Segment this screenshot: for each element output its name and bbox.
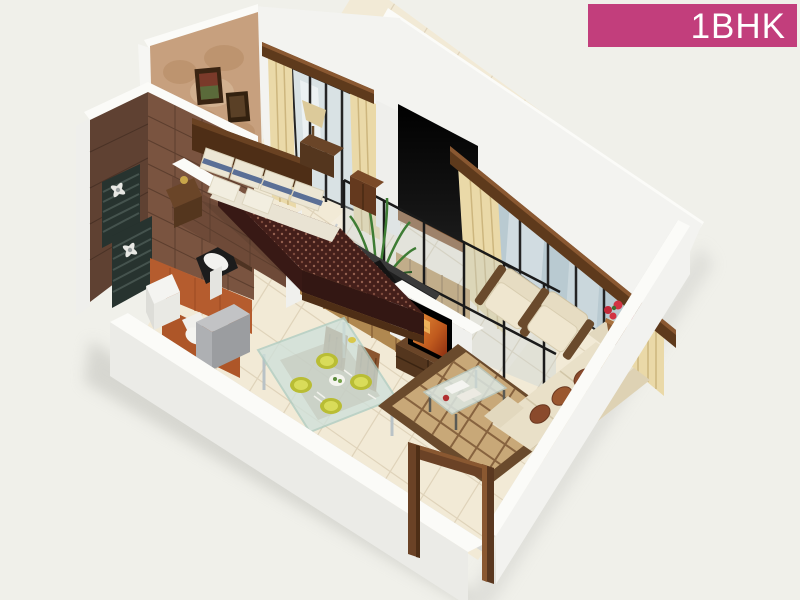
screenshot-stage: 1BHK	[0, 0, 800, 600]
unit-type-label: 1BHK	[691, 7, 786, 46]
serving-bowl	[329, 374, 345, 386]
apartment-3d-render: 1BHK	[0, 0, 800, 600]
picture-frame	[226, 91, 251, 123]
unit-type-banner: 1BHK	[588, 4, 797, 47]
picture-frame	[194, 67, 223, 105]
small-lamp	[180, 176, 188, 184]
